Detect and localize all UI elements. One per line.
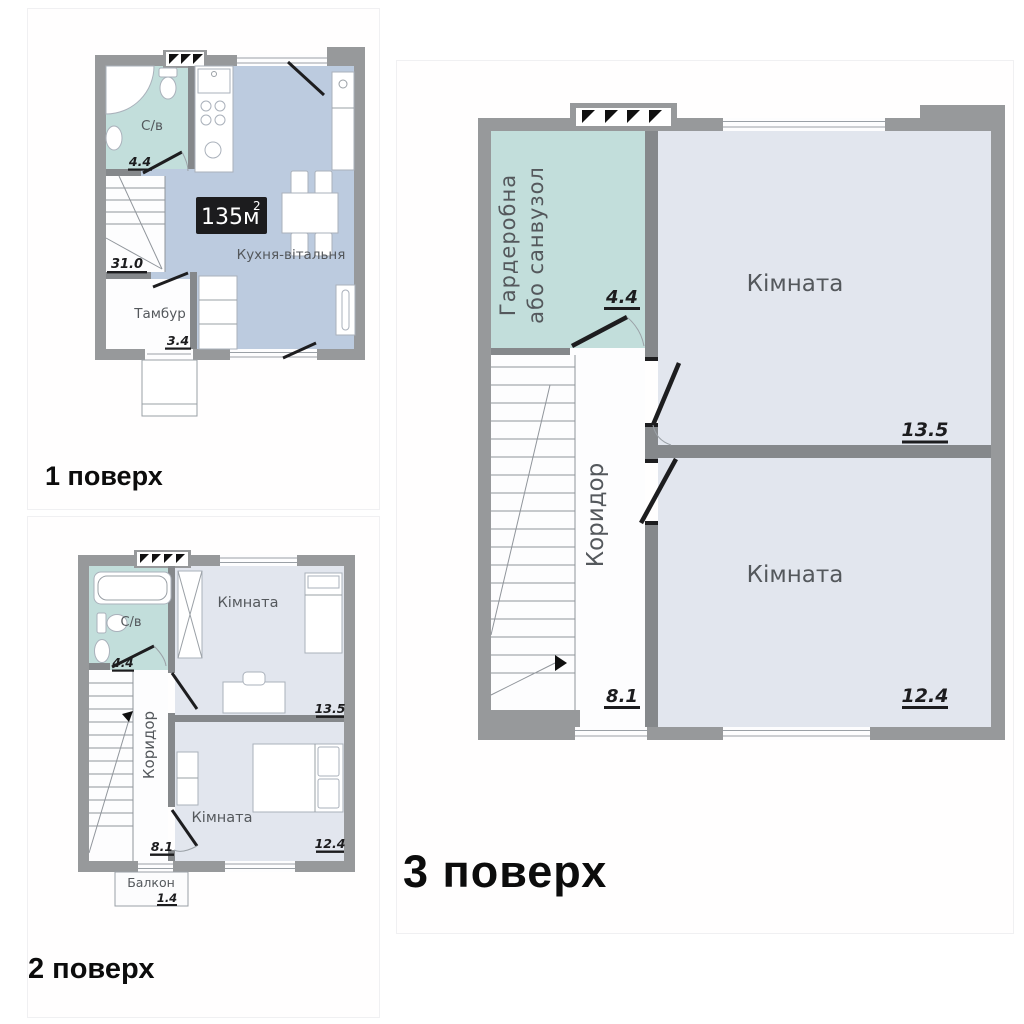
floor1-kitchen-area: 31.0 [111,257,143,272]
floor3-room-bottom-area: 12.4 [902,685,949,707]
floor2-balcony-area: 1.4 [157,891,177,905]
floor2-single-bed-icon [305,573,342,653]
floor2-vent-hatch [134,550,191,568]
floor1-toilet-icon [159,68,177,99]
floor1-vent-hatch [163,50,207,68]
floor3-wardrobe-area: 4.4 [605,287,638,308]
floor1-fridge-icon [332,72,354,170]
floor3-corridor-label: Коридор [583,463,609,568]
floor3-corridor-area: 8.1 [606,686,638,707]
floor1-kitchen-label: Кухня-вітальня [237,247,346,263]
floor1-cabinet-icon [199,276,237,349]
floor2-sink-icon [95,640,110,663]
floor2-bathtub-icon [94,572,171,604]
floor2-double-bed-icon [253,744,343,812]
floor3-plan: Гардеробна або санвузол 4.4 Кімната 13.5… [455,95,1015,755]
floor2-bathroom-area: 4.4 [111,656,133,670]
floor2-corridor-label: Коридор [140,711,158,779]
floor1-plan: 135м 2 С/в 4.4 31.0 Тамбур 3.4 Кухня-віт… [85,38,380,428]
floor3-drawing: Гардеробна або санвузол 4.4 Кімната 13.5… [455,95,1015,755]
floor2-caption: 2 поверх [28,953,154,986]
floor1-sink-icon [106,126,122,150]
floor2-cabinet-icon [177,752,198,805]
floor3-wardrobe-label-line1: Гардеробна [496,174,520,316]
floor3-wardrobe-label-line2: або санвузол [524,166,548,324]
floor3-vent-hatch [570,103,677,131]
floor2-room-top-area: 13.5 [315,701,346,716]
floor3-room-top-label: Кімната [747,271,844,297]
floor2-bathroom-label: С/в [120,615,141,630]
floor2-room-bottom-area: 12.4 [315,836,346,851]
floor3-room-top-area: 13.5 [902,419,949,441]
badge-value: 135м [201,205,260,230]
floor1-radiator-icon [336,285,355,335]
floor2-corridor-area: 8.1 [151,839,173,854]
floor1-drawing: 135м 2 С/в 4.4 31.0 Тамбур 3.4 Кухня-віт… [85,38,380,428]
floor2-drawing: С/в 4.4 Кімната 13.5 Коридор 8.1 Кімната… [70,545,370,920]
floor2-wardrobe-icon [178,571,202,658]
floor1-bathroom-area: 4.4 [128,154,151,169]
floor1-bathroom-label: С/в [141,118,163,134]
floor2-room-top-label: Кімната [218,595,279,611]
floor1-vestibule-label: Тамбур [133,306,186,322]
floor3-caption: 3 поверх [403,846,607,898]
badge-sup: 2 [253,199,261,213]
floor2-plan: С/в 4.4 Кімната 13.5 Коридор 8.1 Кімната… [70,545,370,920]
floor2-balcony-label: Балкон [127,875,175,890]
floor1-kitchen-counter [195,66,233,172]
floor1-vestibule-area: 3.4 [167,333,189,348]
floor1-caption: 1 поверх [45,461,163,492]
floor1-area-badge: 135м 2 [196,197,267,234]
floor2-room-bottom-label: Кімната [192,810,253,826]
floorplan-collage: 135м 2 С/в 4.4 31.0 Тамбур 3.4 Кухня-віт… [0,0,1024,1024]
floor1-entry-porch [142,360,197,416]
floor3-room-bottom-label: Кімната [747,562,844,588]
